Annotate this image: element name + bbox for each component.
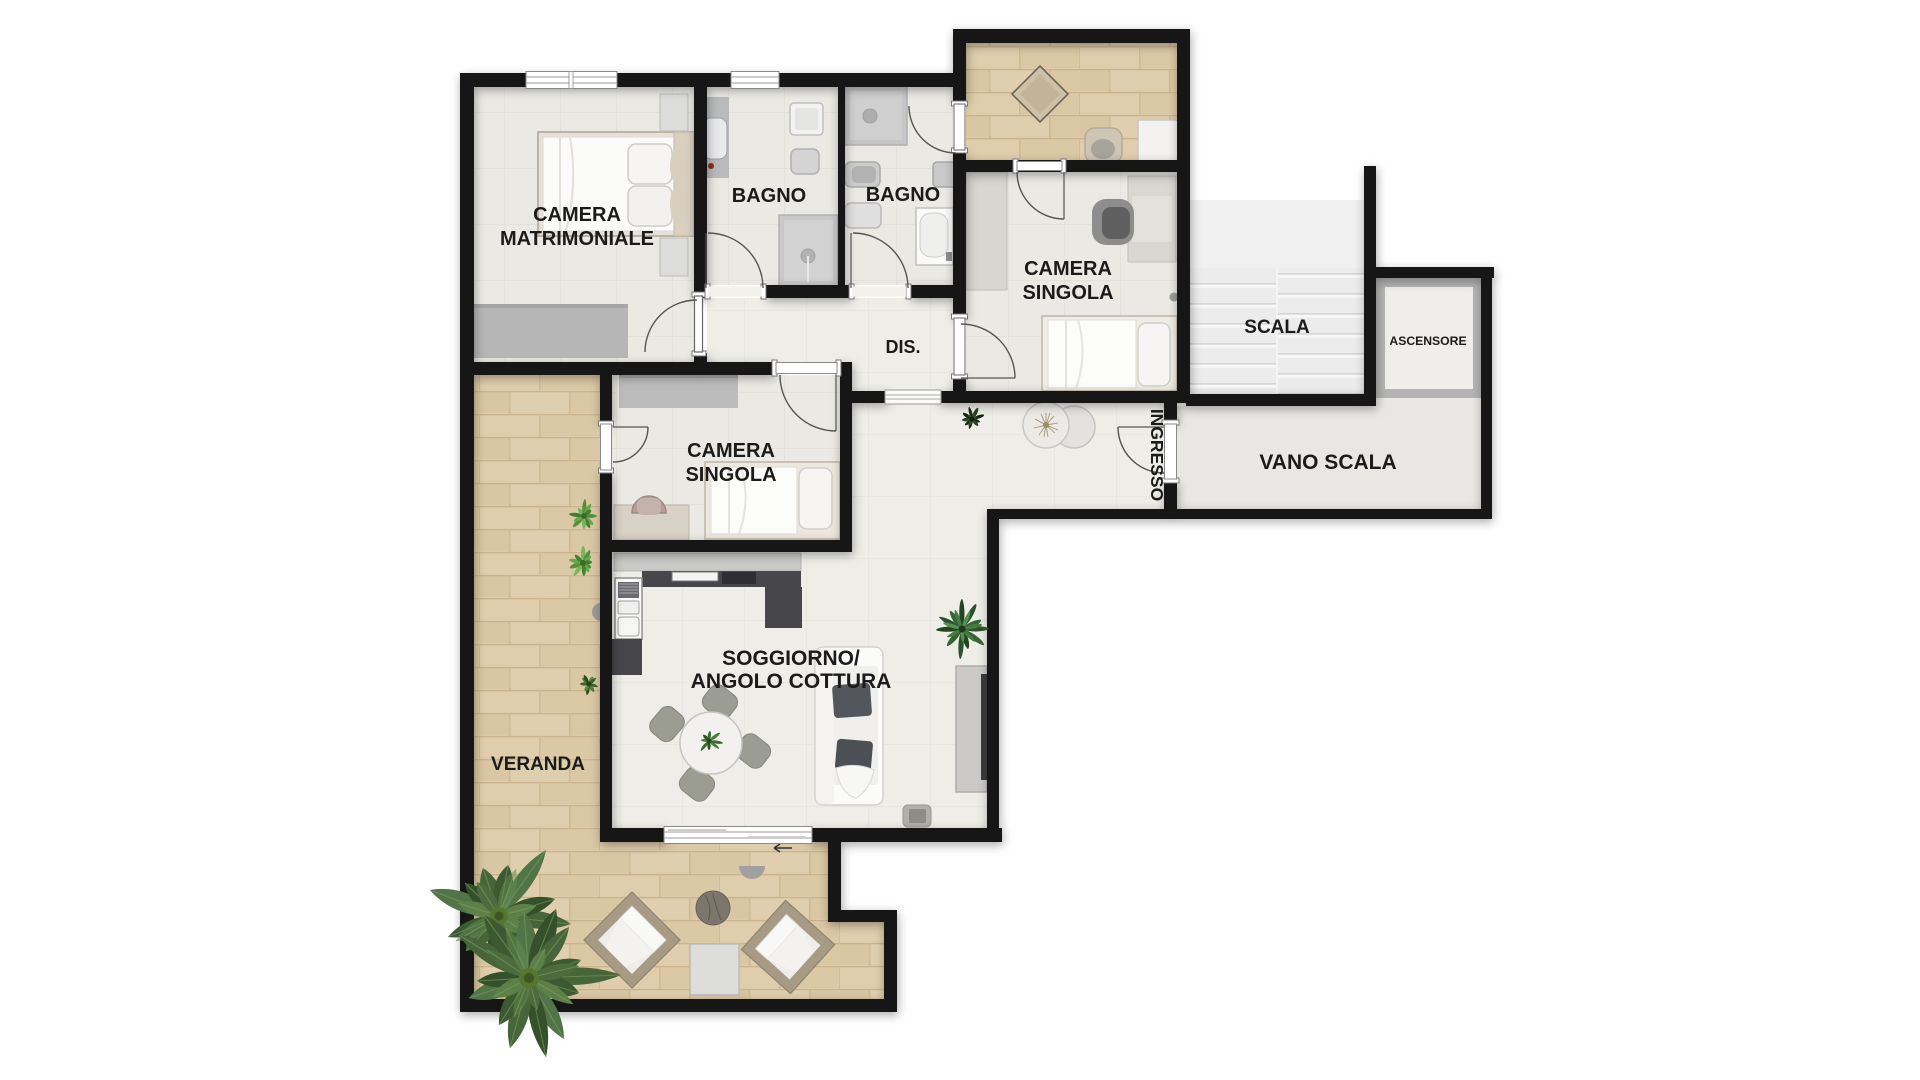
svg-text:VERANDA: VERANDA: [491, 754, 585, 775]
svg-text:CAMERA: CAMERA: [1024, 258, 1112, 280]
svg-text:INGRESSO: INGRESSO: [1147, 409, 1167, 501]
svg-text:CAMERA: CAMERA: [687, 440, 775, 462]
svg-text:BAGNO: BAGNO: [732, 185, 806, 207]
svg-text:CAMERA: CAMERA: [533, 204, 621, 226]
svg-text:ASCENSORE: ASCENSORE: [1389, 334, 1466, 348]
svg-text:DIS.: DIS.: [885, 337, 920, 357]
svg-text:SCALA: SCALA: [1244, 317, 1310, 338]
svg-text:SINGOLA: SINGOLA: [1022, 282, 1113, 304]
svg-text:VANO SCALA: VANO SCALA: [1259, 451, 1396, 474]
svg-text:BAGNO: BAGNO: [866, 184, 940, 206]
svg-text:SINGOLA: SINGOLA: [685, 464, 776, 486]
svg-text:ANGOLO COTTURA: ANGOLO COTTURA: [691, 670, 892, 693]
svg-text:SOGGIORNO/: SOGGIORNO/: [722, 647, 860, 670]
svg-text:MATRIMONIALE: MATRIMONIALE: [500, 228, 654, 250]
